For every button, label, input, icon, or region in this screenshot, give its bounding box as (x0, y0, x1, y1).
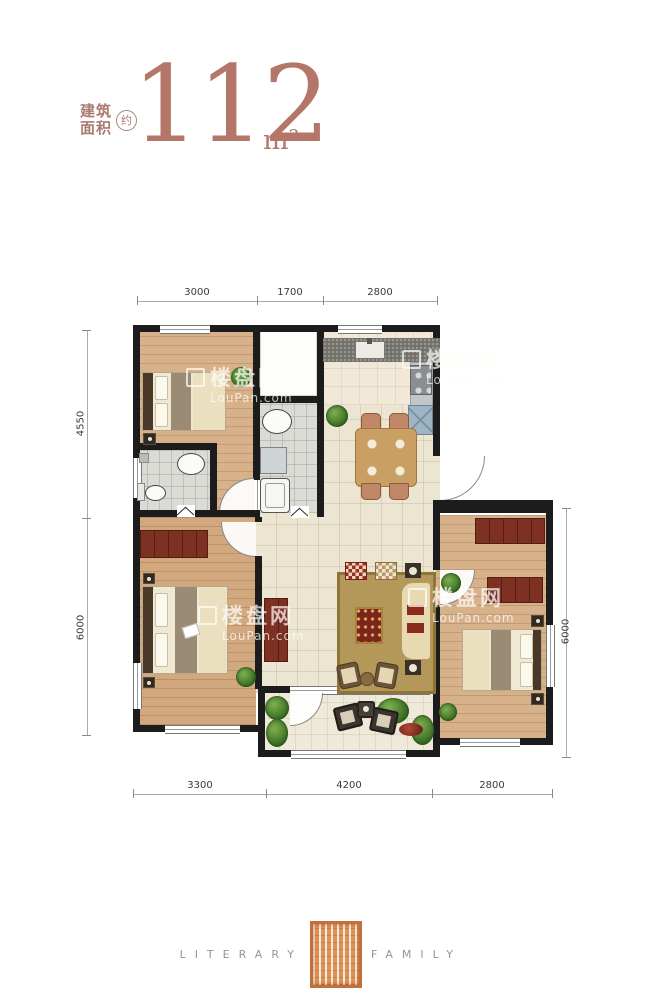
dimension-tick (82, 735, 91, 736)
ottoman (375, 562, 397, 580)
bathroom-sink (177, 453, 205, 475)
dimension-left: 4550 6000 (76, 326, 92, 738)
dimension-tick (437, 296, 438, 305)
area-label-line2: 面积 (80, 120, 112, 137)
dim-label: 1700 (270, 287, 310, 298)
coffee-table (355, 607, 383, 644)
footer-word-right: FAMILY (371, 948, 526, 961)
plant (265, 696, 289, 720)
watermark-domain: LouPan.com (432, 611, 515, 625)
wall (433, 513, 440, 570)
window (160, 325, 210, 334)
watermark-domain: LouPan.com (210, 391, 293, 405)
dimension-tick (562, 508, 571, 509)
window (546, 625, 555, 687)
window (460, 738, 520, 747)
toilet-tank (137, 483, 145, 501)
wall (133, 510, 260, 517)
wall (317, 325, 324, 403)
wall (546, 500, 553, 745)
bed (463, 630, 541, 690)
floor-plan-page: 建筑 面积 约 112 m² 3000 1700 2800 3300 4200 … (0, 0, 666, 1000)
plant (326, 405, 348, 427)
watermark-name: 楼盘网 (426, 344, 498, 374)
dim-label: 6000 (76, 608, 87, 648)
dimension-top: 3000 1700 2800 (130, 287, 442, 305)
flower-box (399, 723, 423, 736)
footer-word-left: LITERARY (148, 948, 303, 961)
watermark-domain: LouPan.com (222, 629, 305, 643)
dimension-tick (82, 330, 91, 331)
wall (258, 689, 265, 757)
dim-label: 3300 (180, 780, 220, 791)
dimension-tick (323, 296, 324, 305)
dimension-tick (82, 518, 91, 519)
bathroom-sink (262, 409, 292, 434)
dimension-tick (562, 757, 571, 758)
watermark-logo-icon (198, 606, 217, 625)
toilet (145, 485, 166, 501)
watermark-name: 楼盘网 (432, 582, 504, 612)
dimension-tick (257, 296, 258, 305)
watermark-name: 楼盘网 (222, 600, 294, 630)
watermark-name: 楼盘网 (210, 362, 282, 392)
wall (210, 443, 217, 517)
window (133, 663, 142, 709)
side-table (405, 660, 421, 675)
dimension-tick (133, 789, 134, 798)
wall (433, 500, 553, 513)
dim-label: 2800 (472, 780, 512, 791)
wall (433, 689, 440, 750)
dimension-right: 6000 (559, 504, 575, 760)
watermark: 楼盘网 LouPan.com (198, 600, 305, 643)
washing-machine (260, 447, 287, 474)
bathroom1-folding-door (177, 505, 195, 517)
watermark-logo-icon (408, 588, 427, 607)
ottoman (345, 562, 367, 580)
dimension-tick (432, 789, 433, 798)
armchair (373, 661, 399, 689)
wardrobe (475, 518, 545, 544)
window (338, 325, 382, 334)
side-table (405, 563, 421, 578)
dimension-line (133, 794, 553, 795)
watermark: 楼盘网 LouPan.com (186, 362, 293, 405)
dining-chair (389, 483, 409, 500)
dimension-line (87, 330, 88, 736)
watermark: 楼盘网 LouPan.com (408, 582, 515, 625)
dining-table (355, 428, 417, 487)
dim-label: 2800 (360, 287, 400, 298)
wall (253, 403, 260, 480)
nightstand (531, 615, 544, 627)
nightstand (143, 677, 155, 688)
watermark-logo-icon (402, 350, 421, 369)
kitchen-sink (355, 341, 385, 359)
plant (266, 719, 288, 747)
dimension-tick (266, 789, 267, 798)
brand-seal-logo (310, 921, 362, 988)
watermark: 楼盘网 LouPan.com (402, 344, 509, 387)
nightstand (143, 433, 156, 445)
bathtub (260, 478, 290, 513)
bathroom2-folding-door (291, 506, 309, 518)
balcony-table (357, 701, 375, 718)
nightstand (143, 573, 155, 584)
area-unit: m² (263, 125, 299, 156)
watermark-logo-icon (186, 368, 205, 387)
wall (317, 403, 324, 517)
area-label-line1: 建筑 (80, 103, 112, 120)
nightstand (531, 693, 544, 705)
pouf (360, 672, 374, 686)
dining-chair (361, 483, 381, 500)
area-label: 建筑 面积 (80, 103, 112, 137)
wall (258, 686, 290, 693)
window (165, 725, 240, 734)
dimension-tick (137, 296, 138, 305)
dim-label: 4200 (329, 780, 369, 791)
dim-label: 6000 (561, 612, 572, 652)
dim-label: 4550 (76, 404, 87, 444)
dimension-tick (552, 789, 553, 798)
balcony-railing-window (291, 750, 406, 759)
bathroom-cabinet (139, 453, 149, 463)
dimension-line (137, 301, 438, 302)
plant (439, 703, 457, 721)
dim-label: 3000 (177, 287, 217, 298)
wall (255, 517, 262, 522)
plant (236, 667, 256, 687)
entry-door-arc (440, 456, 485, 501)
watermark-domain: LouPan.com (426, 373, 509, 387)
dimension-bottom: 3300 4200 2800 (130, 779, 555, 797)
wardrobe (140, 530, 208, 558)
